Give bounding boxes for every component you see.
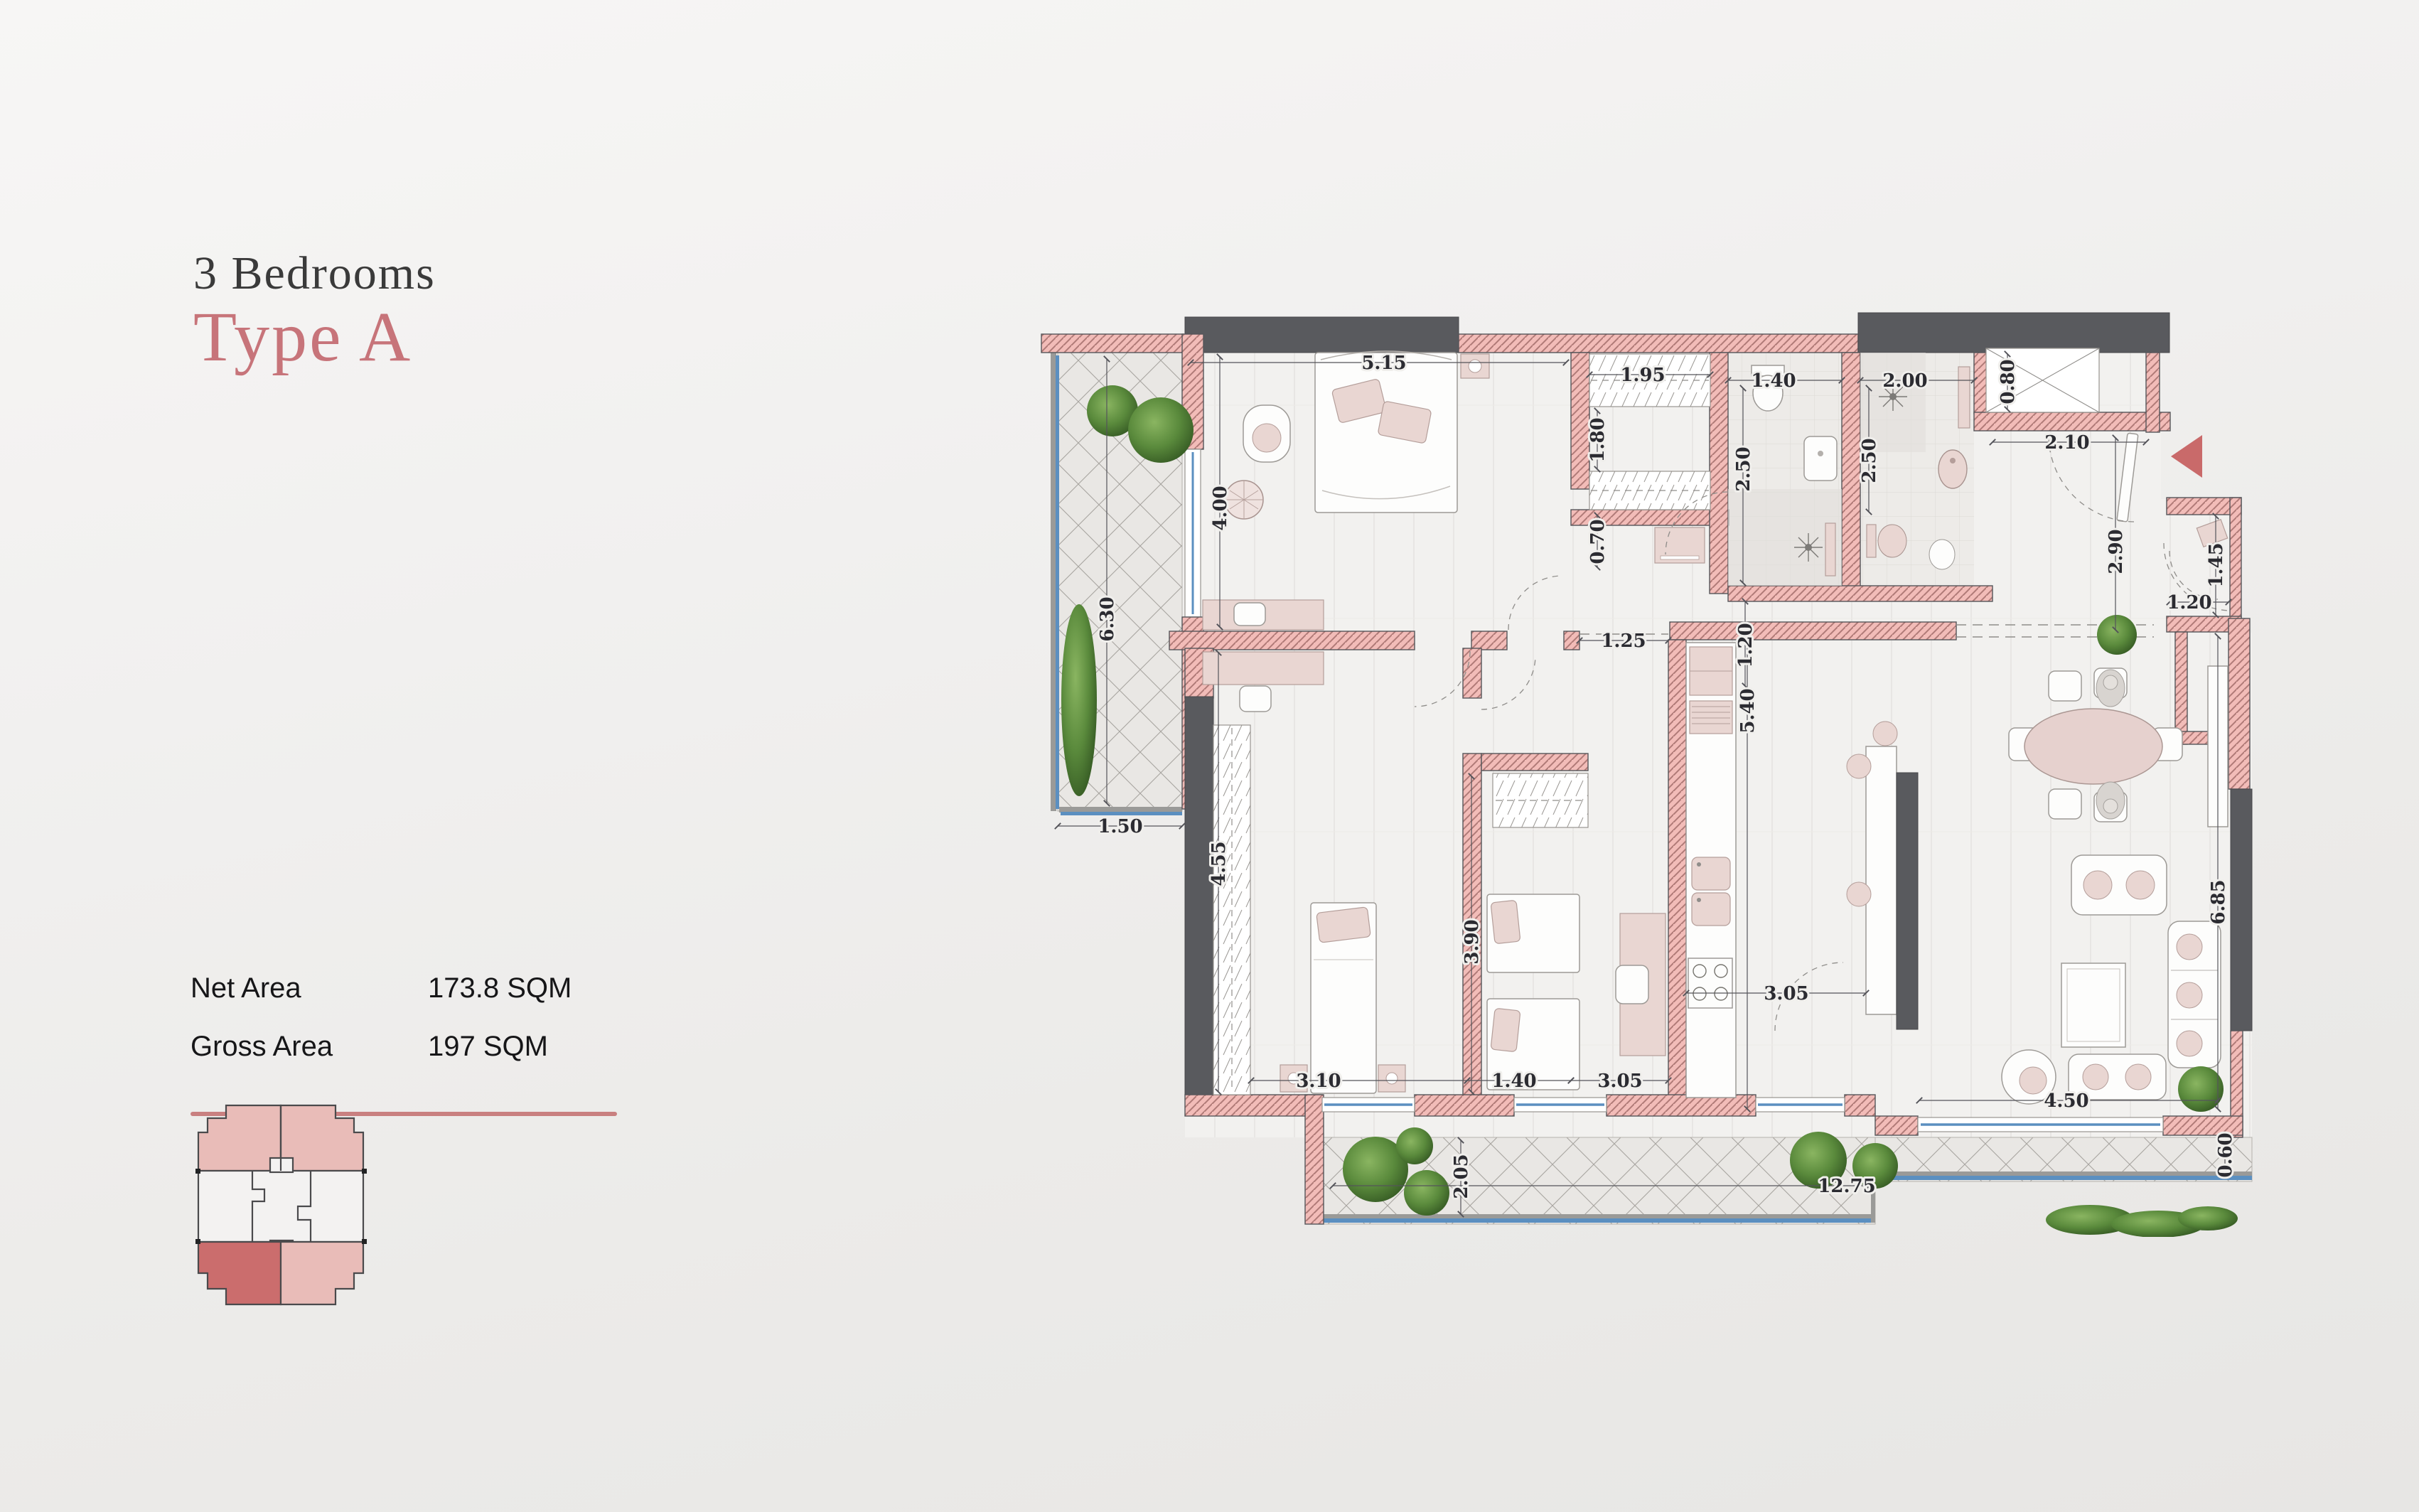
dimension-label: 5.15	[1361, 353, 1406, 374]
tv-console	[1655, 527, 1705, 563]
single-bed	[1487, 894, 1579, 972]
entry-plant	[2097, 615, 2137, 655]
dimension-label: 1.25	[1601, 631, 1646, 652]
dimension-label: 1.95	[1620, 365, 1665, 386]
party-wall-top-right	[1858, 313, 2169, 353]
armchair	[1243, 405, 1290, 462]
shower	[1728, 489, 1842, 586]
stove	[1688, 958, 1732, 1008]
wardrobe-bottom	[1589, 471, 1710, 510]
fridge	[1690, 647, 1732, 695]
coffee-table	[2061, 963, 2125, 1047]
party-wall-top-left	[1185, 317, 1459, 353]
closet-strip	[1493, 773, 1588, 827]
master-desk	[1203, 600, 1324, 630]
dimension-label: 1.20	[1735, 623, 1756, 667]
closet-strip	[1213, 725, 1250, 1095]
dimension-label: 1.20	[2167, 592, 2211, 613]
corner-plant	[2178, 1066, 2224, 1112]
key-plan-core-band	[198, 1171, 363, 1242]
stool	[1847, 882, 1871, 906]
sofa-vertical	[2168, 921, 2221, 1068]
stool	[1847, 754, 1871, 778]
dimension-label: 5.40	[1737, 688, 1759, 733]
dimension-label: 1.40	[1751, 370, 1796, 392]
sink-oval	[1938, 450, 1967, 488]
sink	[1804, 436, 1837, 481]
floor-plan: 5.15 4.00 6.30 1.50 1.95 1.80 0.70 1.40 …	[1017, 299, 2289, 1237]
dimension-label: 3.05	[1764, 983, 1808, 1004]
key-plan-unit-bottom-left-highlighted	[198, 1242, 281, 1304]
dimension-label: 3.90	[1461, 919, 1483, 964]
dimension-label: 0.60	[2215, 1132, 2236, 1177]
dimension-label: 0.70	[1587, 519, 1609, 564]
page-subtitle: Type A	[193, 301, 436, 372]
toilet-2	[1867, 525, 1906, 557]
bedroom-3-desk	[1616, 913, 1666, 1056]
dimension-label: 1.40	[1491, 1071, 1536, 1092]
dimension-label: 2.05	[1451, 1154, 1472, 1199]
net-area-row: Net Area 173.8 SQM	[191, 972, 645, 1031]
area-summary: Net Area 173.8 SQM Gross Area 197 SQM	[191, 972, 645, 1089]
loveseat-a	[2071, 855, 2167, 915]
party-wall-right	[2231, 789, 2252, 1031]
dining-table	[2024, 709, 2162, 784]
stool	[1873, 722, 1897, 746]
dimension-label: 2.90	[2106, 529, 2127, 574]
dimension-label: 6.85	[2208, 879, 2229, 924]
gross-area-value: 197 SQM	[428, 1031, 548, 1063]
entry-arrow	[2171, 435, 2202, 478]
dimension-label: 2.50	[1733, 446, 1754, 491]
net-area-label: Net Area	[191, 972, 301, 1004]
dimension-label: 12.75	[1818, 1176, 1875, 1197]
dimension-label: 3.05	[1597, 1071, 1642, 1092]
page-title: 3 Bedrooms	[193, 250, 436, 297]
double-bed	[1315, 351, 1457, 513]
bath-shelf	[1958, 367, 1970, 428]
coffee-station	[1690, 701, 1732, 734]
dimension-label: 4.00	[1210, 486, 1231, 530]
dimension-label: 4.50	[2044, 1090, 2088, 1112]
dimension-label: 4.55	[1208, 841, 1230, 886]
dimension-label: 2.50	[1859, 438, 1880, 483]
dimension-label: 2.00	[1882, 370, 1927, 392]
bidet	[1929, 540, 1955, 569]
shower-2	[1860, 353, 1926, 452]
key-plan-unit-top-left	[198, 1105, 281, 1171]
key-plan	[188, 1103, 375, 1309]
net-area-value: 173.8 SQM	[428, 972, 572, 1004]
entry-jamb-wall	[2146, 353, 2160, 432]
dimension-label: 2.10	[2044, 432, 2089, 454]
title-block: 3 Bedrooms Type A	[193, 250, 436, 372]
dimension-label: 0.80	[1997, 359, 2019, 404]
nightstand	[1461, 354, 1489, 378]
party-wall-bedroom	[1185, 697, 1213, 1116]
dimension-label: 3.10	[1296, 1071, 1341, 1092]
gross-area-row: Gross Area 197 SQM	[191, 1031, 645, 1089]
dimension-label: 1.45	[2206, 542, 2227, 587]
single-bed	[1311, 903, 1376, 1093]
gross-area-label: Gross Area	[191, 1031, 333, 1063]
key-plan-unit-bottom-right	[281, 1242, 363, 1304]
dimension-label: 1.80	[1587, 417, 1609, 462]
dimension-label: 1.50	[1098, 816, 1142, 837]
dimension-label: 6.30	[1097, 596, 1118, 641]
